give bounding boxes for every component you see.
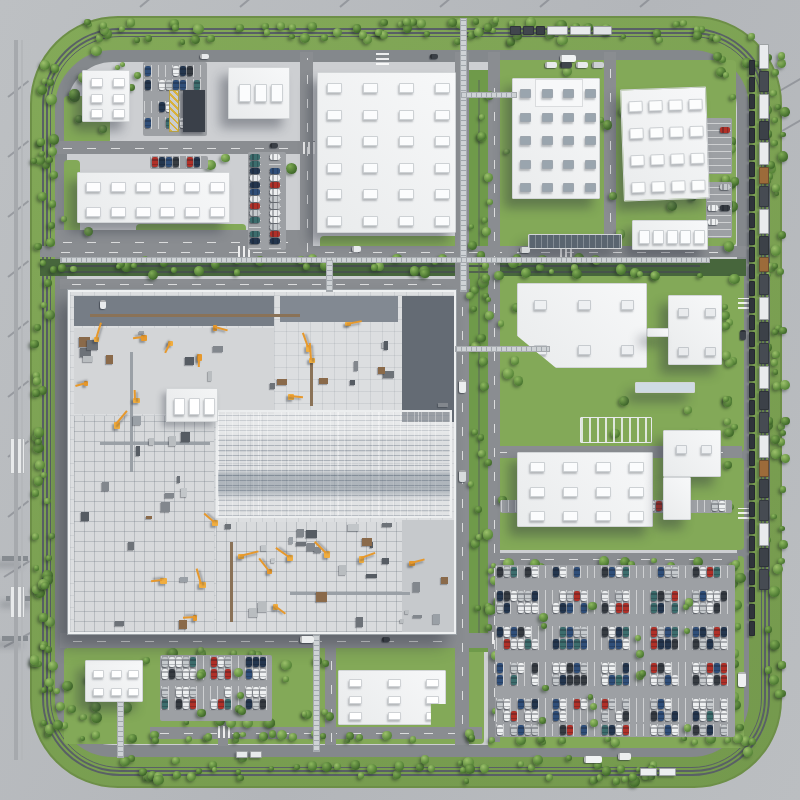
parked-car <box>658 567 664 577</box>
tree <box>771 435 780 444</box>
parked-car <box>693 711 699 721</box>
rooftop-vent <box>399 83 414 93</box>
tree <box>475 506 482 513</box>
parked-car <box>721 627 727 637</box>
parked-car <box>693 663 699 673</box>
rooftop-vent <box>426 696 439 704</box>
parked-car <box>658 639 664 649</box>
rooftop-vent <box>596 511 611 521</box>
factory-equipment <box>225 524 231 529</box>
rooftop-vent <box>399 163 414 173</box>
rooftop-vent <box>651 181 665 192</box>
tree <box>322 762 332 772</box>
parked-car <box>700 567 706 577</box>
train-car <box>759 209 769 234</box>
parked-car <box>532 711 538 721</box>
rooftop-vent <box>388 712 401 720</box>
train-car <box>749 417 755 432</box>
tree <box>693 31 702 40</box>
tree <box>460 767 466 773</box>
tree <box>294 764 300 770</box>
parked-car <box>553 675 559 685</box>
parked-car <box>145 80 151 90</box>
rooftop-vent <box>111 688 122 696</box>
parked-car <box>602 699 608 709</box>
parked-car <box>707 603 713 613</box>
rooftop-vent <box>530 511 545 521</box>
tree <box>84 19 91 26</box>
train-car <box>759 435 769 458</box>
parked-car <box>250 168 260 174</box>
parked-car <box>574 663 580 673</box>
parked-car <box>574 627 580 637</box>
parked-car <box>623 627 629 637</box>
parked-car <box>250 217 260 223</box>
tree <box>651 558 656 563</box>
parked-car <box>651 663 657 673</box>
parked-car <box>225 699 231 709</box>
parked-car <box>253 699 259 709</box>
train-car <box>749 264 755 279</box>
rooftop-vent <box>534 300 547 310</box>
train-car <box>749 332 755 347</box>
parked-car <box>250 238 260 244</box>
tree <box>91 702 101 712</box>
factory-equipment <box>270 383 275 390</box>
parked-car <box>567 675 573 685</box>
tree <box>68 705 76 713</box>
tree <box>765 666 773 674</box>
tree <box>597 774 604 781</box>
parked-car <box>270 168 280 174</box>
train-car <box>759 186 769 207</box>
parked-car <box>260 699 266 709</box>
parked-car <box>672 567 678 577</box>
catenary-mast-shadow <box>239 0 256 8</box>
construction-crane <box>238 554 245 560</box>
tree <box>775 690 783 698</box>
factory-equipment <box>413 582 420 592</box>
catenary-mast-shadow <box>339 0 356 8</box>
parking-island-tree <box>539 613 547 621</box>
parked-car <box>176 687 182 697</box>
factory-equipment <box>106 355 112 364</box>
tree <box>173 771 181 779</box>
tree <box>322 709 328 715</box>
tree <box>134 37 140 43</box>
parked-car <box>623 675 629 685</box>
tree <box>528 764 535 771</box>
factory-roof-section <box>280 296 398 322</box>
factory-equipment <box>128 542 135 549</box>
road-vehicle <box>618 753 631 760</box>
tree <box>546 774 553 781</box>
rooftop-vent <box>585 160 596 169</box>
parked-car <box>176 657 182 667</box>
road-vehicle <box>430 54 438 59</box>
rooftop-vent <box>399 189 414 199</box>
factory-white-hall <box>166 388 218 422</box>
catenary-mast-shadow <box>7 80 29 98</box>
parked-car <box>707 627 713 637</box>
train-car <box>749 77 755 92</box>
rooftop-vent <box>530 487 545 497</box>
parked-car <box>574 675 580 685</box>
road-vehicle <box>459 380 466 393</box>
road-vehicle <box>738 672 746 687</box>
tree <box>382 731 391 740</box>
construction-crane <box>114 422 121 429</box>
tree <box>395 761 404 770</box>
road <box>60 633 488 648</box>
tree <box>393 770 401 778</box>
green-strip <box>21 40 23 760</box>
parked-car <box>700 711 706 721</box>
tree <box>128 734 137 743</box>
rooftop-vent <box>255 84 267 102</box>
factory-equipment <box>319 378 328 384</box>
rooftop-vent <box>111 182 126 192</box>
factory-equipment <box>405 610 409 614</box>
office-d <box>512 78 600 199</box>
tree <box>48 222 55 229</box>
office-a <box>82 70 130 122</box>
tree <box>143 657 150 664</box>
construction-crane <box>324 551 330 558</box>
tree <box>91 712 102 723</box>
train-car <box>749 349 755 364</box>
parked-car <box>658 699 664 709</box>
parked-car <box>721 663 727 673</box>
rooftop-vent <box>435 189 450 199</box>
parked-car <box>720 184 730 190</box>
rooftop-vent <box>629 462 644 472</box>
parked-car <box>581 591 587 601</box>
rooftop-vent <box>327 189 342 199</box>
factory-equipment <box>261 545 267 551</box>
parked-car <box>190 687 196 697</box>
road-vehicle <box>592 62 604 68</box>
rooftop-vent <box>520 113 531 122</box>
tree <box>771 514 776 519</box>
catenary-mast-shadow <box>139 0 156 8</box>
train-car <box>759 523 769 546</box>
crane-arm <box>309 342 312 359</box>
tree <box>153 775 163 785</box>
rooftop-vent <box>136 182 151 192</box>
parked-car <box>560 603 566 613</box>
train-car <box>749 111 755 126</box>
rooftop-vent <box>128 670 139 678</box>
tree <box>780 486 787 493</box>
parked-car <box>616 675 622 685</box>
tree <box>39 613 47 621</box>
construction-crane <box>199 582 205 588</box>
tree <box>172 24 179 31</box>
train-car <box>749 298 755 313</box>
rooftop-vent <box>435 83 450 93</box>
parked-car <box>609 663 615 673</box>
catenary-mast-shadow <box>639 0 656 8</box>
tree <box>148 270 158 280</box>
parked-car <box>518 603 524 613</box>
rooftop-vent <box>113 109 125 118</box>
rooftop-vent <box>629 128 643 139</box>
parked-car <box>581 675 587 685</box>
rooftop-vent <box>239 84 251 102</box>
train-car <box>759 500 769 521</box>
parked-car <box>560 675 566 685</box>
parked-car <box>194 157 200 167</box>
rooftop-vent <box>563 89 574 98</box>
hall-e <box>620 87 710 202</box>
crane-arm <box>133 390 135 400</box>
parked-car <box>609 725 615 735</box>
tree <box>622 776 627 781</box>
tree <box>40 644 46 650</box>
factory-equipment <box>297 529 303 538</box>
construction-crane <box>133 398 140 403</box>
rooftop-vent <box>327 83 342 93</box>
rooftop-vent <box>639 230 650 244</box>
factory-equipment <box>185 357 193 366</box>
factory-complex <box>68 290 456 634</box>
rooftop-vent <box>578 345 591 355</box>
parked-car <box>560 591 566 601</box>
tree <box>41 302 47 308</box>
rooftop-vent <box>363 136 378 146</box>
factory-equipment <box>378 367 385 374</box>
tree <box>37 85 47 95</box>
parked-car <box>270 189 280 195</box>
parked-car <box>253 687 259 697</box>
parked-car <box>574 567 580 577</box>
rooftop-vent <box>91 109 103 118</box>
parked-car <box>672 675 678 685</box>
tree <box>281 660 291 670</box>
rooftop-vent <box>585 183 596 192</box>
tree <box>193 24 204 35</box>
train-car <box>749 570 755 585</box>
train-car <box>759 548 769 567</box>
construction-crane <box>193 615 197 621</box>
train-car <box>749 230 755 245</box>
rooftop-vent <box>349 696 362 704</box>
parked-car <box>553 663 559 673</box>
parked-car <box>623 639 629 649</box>
tree <box>468 241 477 250</box>
parked-car <box>532 675 538 685</box>
rooftop-vent <box>91 78 103 87</box>
rooftop-vent <box>327 136 342 146</box>
rooftop-vent <box>435 110 450 120</box>
tree <box>375 29 382 36</box>
parked-car <box>609 567 615 577</box>
parked-car <box>714 591 720 601</box>
tree <box>697 273 702 278</box>
rooftop-vent <box>111 207 126 217</box>
train-car <box>759 121 769 140</box>
parked-car <box>497 663 503 673</box>
rooftop-vent <box>585 113 596 122</box>
train-car <box>759 391 769 410</box>
factory-equipment <box>133 416 140 425</box>
parked-car <box>616 567 622 577</box>
rooftop-vent <box>629 487 644 497</box>
parked-car <box>609 627 615 637</box>
construction-crane <box>309 358 315 363</box>
parked-car <box>700 663 706 673</box>
tree <box>609 192 617 200</box>
parked-car <box>532 699 538 709</box>
road-vehicle <box>560 62 572 68</box>
road-vehicle <box>270 143 278 148</box>
factory-equipment <box>179 620 187 629</box>
parked-car <box>574 591 580 601</box>
rooftop-vent <box>701 445 712 454</box>
factory-equipment <box>289 537 293 544</box>
train-car <box>759 343 769 364</box>
rooftop-vent <box>676 445 687 454</box>
tree <box>743 747 753 757</box>
tree <box>134 72 141 79</box>
pipe-bridge <box>326 260 333 292</box>
parked-car <box>553 603 559 613</box>
parked-car <box>581 663 587 673</box>
train-car <box>749 128 755 143</box>
tree <box>613 777 621 785</box>
parked-car <box>693 603 699 613</box>
rooftop-vent <box>596 462 611 472</box>
train-car <box>759 322 769 341</box>
tree <box>724 418 731 425</box>
rooftop-vent <box>648 100 662 111</box>
parked-car <box>270 154 280 160</box>
parked-car <box>623 567 629 577</box>
tree <box>475 605 481 611</box>
road-vehicle <box>100 300 106 309</box>
tree <box>62 681 73 692</box>
train-car <box>749 468 755 483</box>
factory-equipment <box>249 608 258 617</box>
parked-car <box>707 699 713 709</box>
parked-car <box>616 627 622 637</box>
tree <box>772 184 780 192</box>
rooftop-vent <box>210 207 225 217</box>
parked-car <box>152 157 158 167</box>
tree <box>80 714 86 720</box>
parked-car <box>700 591 706 601</box>
catenary-mast-shadow <box>439 0 456 8</box>
parked-car <box>218 669 224 679</box>
tree <box>680 20 686 26</box>
rooftop-vent <box>668 99 682 110</box>
factory-equipment <box>208 371 212 381</box>
tree <box>212 767 217 772</box>
train-car <box>593 26 612 35</box>
rooftop-vent <box>113 78 125 87</box>
train-car <box>749 587 755 602</box>
pipe-bridge <box>460 18 467 292</box>
parked-car <box>553 567 559 577</box>
parked-car <box>707 675 713 685</box>
parked-car <box>260 669 266 679</box>
parked-car <box>497 675 503 685</box>
parked-car <box>721 711 727 721</box>
factory-equipment <box>307 543 315 551</box>
tree <box>780 132 786 138</box>
factory-equipment <box>384 341 388 350</box>
catenary-mast-shadow <box>7 260 29 278</box>
train-car <box>510 26 521 35</box>
factory-equipment <box>413 615 423 618</box>
parked-car <box>497 627 503 637</box>
annex-f <box>632 220 708 250</box>
factory-equipment <box>441 577 448 583</box>
parked-car <box>616 639 622 649</box>
rooftop-vent <box>113 94 125 103</box>
rooftop-vent <box>631 182 645 193</box>
rooftop-vent <box>630 155 644 166</box>
rooftop-vent <box>542 160 553 169</box>
road-lane-marking <box>73 641 475 642</box>
parked-car <box>187 66 193 76</box>
parked-car <box>553 711 559 721</box>
tree <box>58 264 66 272</box>
train-car <box>749 315 755 330</box>
parked-car <box>721 639 727 649</box>
parked-car <box>250 182 260 188</box>
tree <box>735 623 741 629</box>
parked-car <box>525 711 531 721</box>
parked-car <box>658 711 664 721</box>
tree <box>778 661 785 668</box>
train-car <box>570 26 591 35</box>
crosswalk <box>303 142 315 154</box>
rooftop-vent <box>585 89 596 98</box>
tree <box>769 675 779 685</box>
parked-car <box>700 639 706 649</box>
parked-car <box>708 205 718 211</box>
rooftop-vent <box>363 216 378 226</box>
factory-equipment <box>339 565 346 574</box>
tree <box>780 107 790 117</box>
construction-crane <box>267 569 272 574</box>
train-car <box>749 621 755 636</box>
hall-top-center <box>317 72 456 233</box>
parked-car <box>159 157 165 167</box>
parked-car <box>518 627 524 637</box>
road <box>60 279 470 289</box>
factory-equipment <box>433 614 440 624</box>
rooftop-vent <box>93 670 104 678</box>
parked-car <box>504 603 510 613</box>
factory-equipment <box>277 379 286 384</box>
parked-car <box>511 591 517 601</box>
parked-car <box>714 663 720 673</box>
construction-crane <box>160 578 167 584</box>
rooftop-vent <box>520 89 531 98</box>
tree <box>322 660 329 667</box>
catenary-mast-shadow <box>782 117 800 132</box>
parked-car <box>567 627 573 637</box>
tree <box>56 702 65 711</box>
parked-car <box>693 675 699 685</box>
rooftop-vent <box>174 398 185 415</box>
tree <box>725 737 730 742</box>
rooftop-vent <box>86 207 101 217</box>
parked-car <box>616 591 622 601</box>
